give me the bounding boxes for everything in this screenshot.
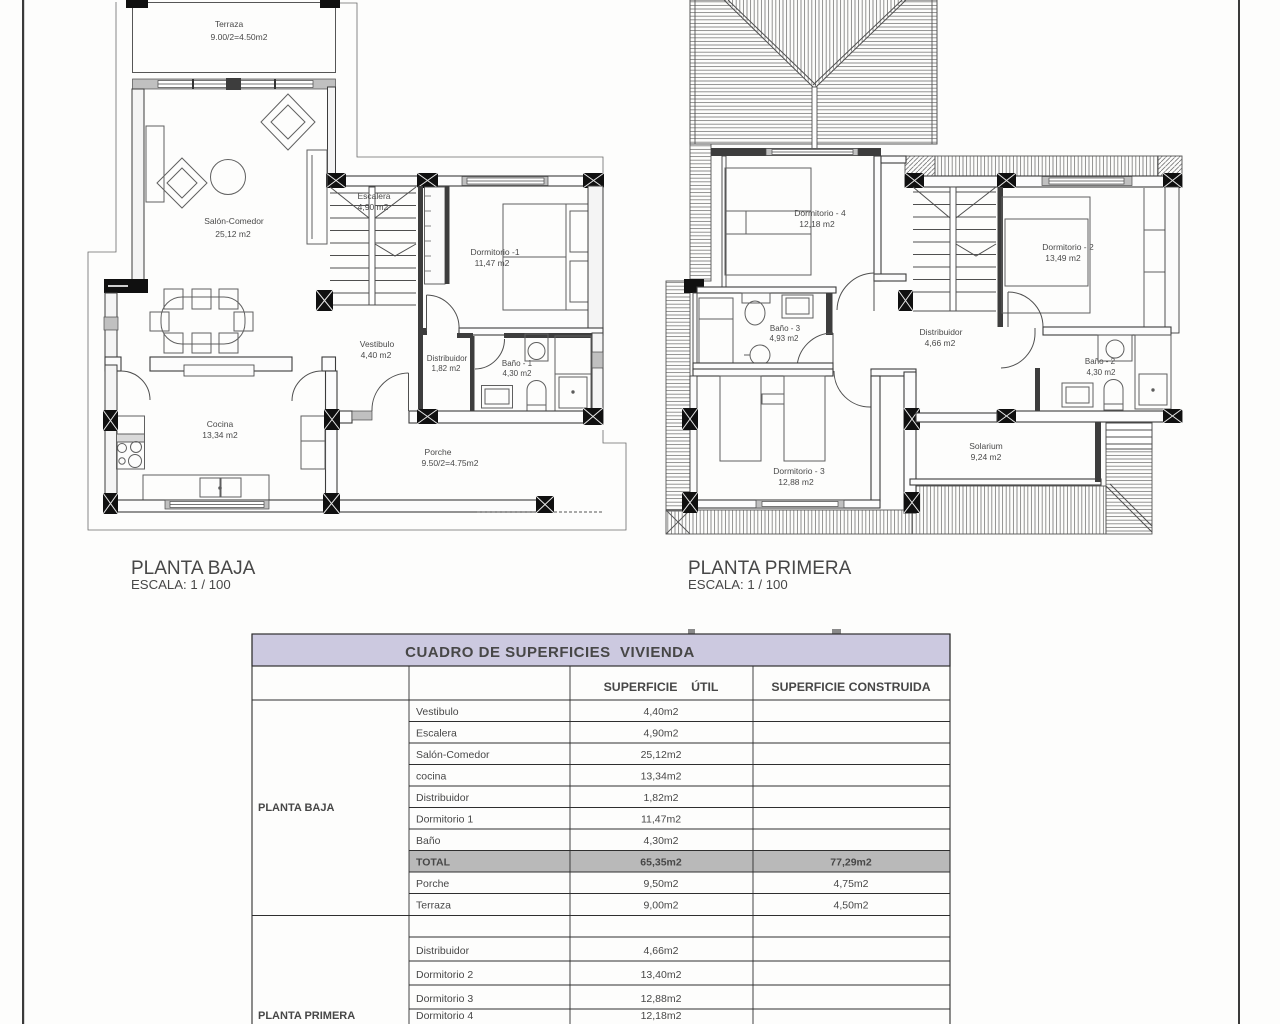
svg-text:PLANTA BAJA: PLANTA BAJA xyxy=(258,802,334,814)
svg-text:PLANTA BAJA: PLANTA BAJA xyxy=(131,558,256,579)
svg-text:Distribuidor: Distribuidor xyxy=(427,354,468,363)
svg-text:Cocina: Cocina xyxy=(207,419,234,429)
svg-text:Baño - 1: Baño - 1 xyxy=(502,359,533,368)
svg-text:Dormitorio 4: Dormitorio 4 xyxy=(416,1010,473,1022)
svg-text:9,00m2: 9,00m2 xyxy=(643,900,678,912)
svg-text:4,40 m2: 4,40 m2 xyxy=(361,350,392,360)
svg-text:Dormitorio -1: Dormitorio -1 xyxy=(470,247,519,257)
svg-text:Dormitorio - 2: Dormitorio - 2 xyxy=(1042,242,1094,252)
svg-text:4,66 m2: 4,66 m2 xyxy=(925,338,956,348)
svg-text:Distribuidor: Distribuidor xyxy=(416,945,470,957)
svg-text:Vestibulo: Vestibulo xyxy=(416,706,459,718)
svg-text:Dormitorio - 3: Dormitorio - 3 xyxy=(773,466,825,476)
svg-text:4,30m2: 4,30m2 xyxy=(643,835,678,847)
svg-text:4,75m2: 4,75m2 xyxy=(833,878,868,890)
svg-text:13,40m2: 13,40m2 xyxy=(641,969,682,981)
svg-text:1,82 m2: 1,82 m2 xyxy=(432,364,461,373)
svg-text:4,40m2: 4,40m2 xyxy=(643,706,678,718)
svg-text:11,47m2: 11,47m2 xyxy=(641,814,681,826)
svg-text:4,90m2: 4,90m2 xyxy=(643,728,678,740)
svg-text:Distribuidor: Distribuidor xyxy=(920,327,963,337)
svg-text:Terraza: Terraza xyxy=(416,900,451,912)
svg-text:PLANTA PRIMERA: PLANTA PRIMERA xyxy=(258,1010,355,1022)
svg-text:ESCALA: 1 / 100: ESCALA: 1 / 100 xyxy=(131,577,231,592)
svg-text:9.00/2=4.50m2: 9.00/2=4.50m2 xyxy=(211,32,268,42)
svg-text:12,18m2: 12,18m2 xyxy=(641,1010,682,1022)
svg-text:Baño: Baño xyxy=(416,835,441,847)
svg-text:Escalera: Escalera xyxy=(416,728,457,740)
svg-text:Baño - 3: Baño - 3 xyxy=(770,324,801,333)
svg-text:Salón-Comedor: Salón-Comedor xyxy=(416,749,490,761)
svg-text:4,90 m2: 4,90 m2 xyxy=(358,202,389,212)
svg-text:Dormitorio - 4: Dormitorio - 4 xyxy=(794,208,846,218)
svg-text:13,34m2: 13,34m2 xyxy=(641,771,682,783)
svg-text:25,12 m2: 25,12 m2 xyxy=(215,229,251,239)
svg-text:Dormitorio 3: Dormitorio 3 xyxy=(416,993,473,1005)
svg-text:Escalera: Escalera xyxy=(357,191,390,201)
svg-text:12,88m2: 12,88m2 xyxy=(641,993,682,1005)
svg-text:9,50m2: 9,50m2 xyxy=(643,878,678,890)
svg-text:CUADRO DE SUPERFICIES VIVIEND: CUADRO DE SUPERFICIES VIVIENDA xyxy=(405,644,695,661)
svg-text:SUPERFICIE ÚTIL: SUPERFICIE ÚTIL xyxy=(604,679,719,694)
svg-text:TOTAL: TOTAL xyxy=(416,857,451,869)
svg-text:25,12m2: 25,12m2 xyxy=(641,749,682,761)
svg-text:Vestibulo: Vestibulo xyxy=(360,339,395,349)
svg-text:4,93 m2: 4,93 m2 xyxy=(770,334,799,343)
svg-text:Porche: Porche xyxy=(416,878,449,890)
svg-text:Distribuidor: Distribuidor xyxy=(416,792,470,804)
svg-text:12,88 m2: 12,88 m2 xyxy=(778,477,814,487)
svg-text:SUPERFICIE CONSTRUIDA: SUPERFICIE CONSTRUIDA xyxy=(771,680,930,694)
svg-text:4,30 m2: 4,30 m2 xyxy=(1087,368,1116,377)
svg-text:9.50/2=4.75m2: 9.50/2=4.75m2 xyxy=(422,458,479,468)
svg-text:1,82m2: 1,82m2 xyxy=(643,792,678,804)
svg-text:11,47 m2: 11,47 m2 xyxy=(475,258,510,268)
svg-text:Salón-Comedor: Salón-Comedor xyxy=(204,216,264,226)
svg-text:13,34 m2: 13,34 m2 xyxy=(202,430,238,440)
svg-text:4,50m2: 4,50m2 xyxy=(833,900,868,912)
svg-text:9,24 m2: 9,24 m2 xyxy=(971,452,1002,462)
svg-text:Terraza: Terraza xyxy=(215,19,244,29)
svg-text:13,49 m2: 13,49 m2 xyxy=(1045,253,1081,263)
svg-text:Dormitorio 2: Dormitorio 2 xyxy=(416,969,473,981)
svg-text:4,30 m2: 4,30 m2 xyxy=(503,369,532,378)
svg-text:77,29m2: 77,29m2 xyxy=(830,857,872,869)
svg-text:65,35m2: 65,35m2 xyxy=(640,857,682,869)
svg-text:cocina: cocina xyxy=(416,771,447,783)
svg-text:4,66m2: 4,66m2 xyxy=(643,945,678,957)
svg-text:PLANTA PRIMERA: PLANTA PRIMERA xyxy=(688,558,852,579)
svg-text:Solarium: Solarium xyxy=(969,441,1003,451)
svg-text:ESCALA: 1 / 100: ESCALA: 1 / 100 xyxy=(688,577,788,592)
svg-text:12,18 m2: 12,18 m2 xyxy=(799,219,835,229)
svg-text:Porche: Porche xyxy=(425,447,452,457)
svg-text:Dormitorio 1: Dormitorio 1 xyxy=(416,814,473,826)
